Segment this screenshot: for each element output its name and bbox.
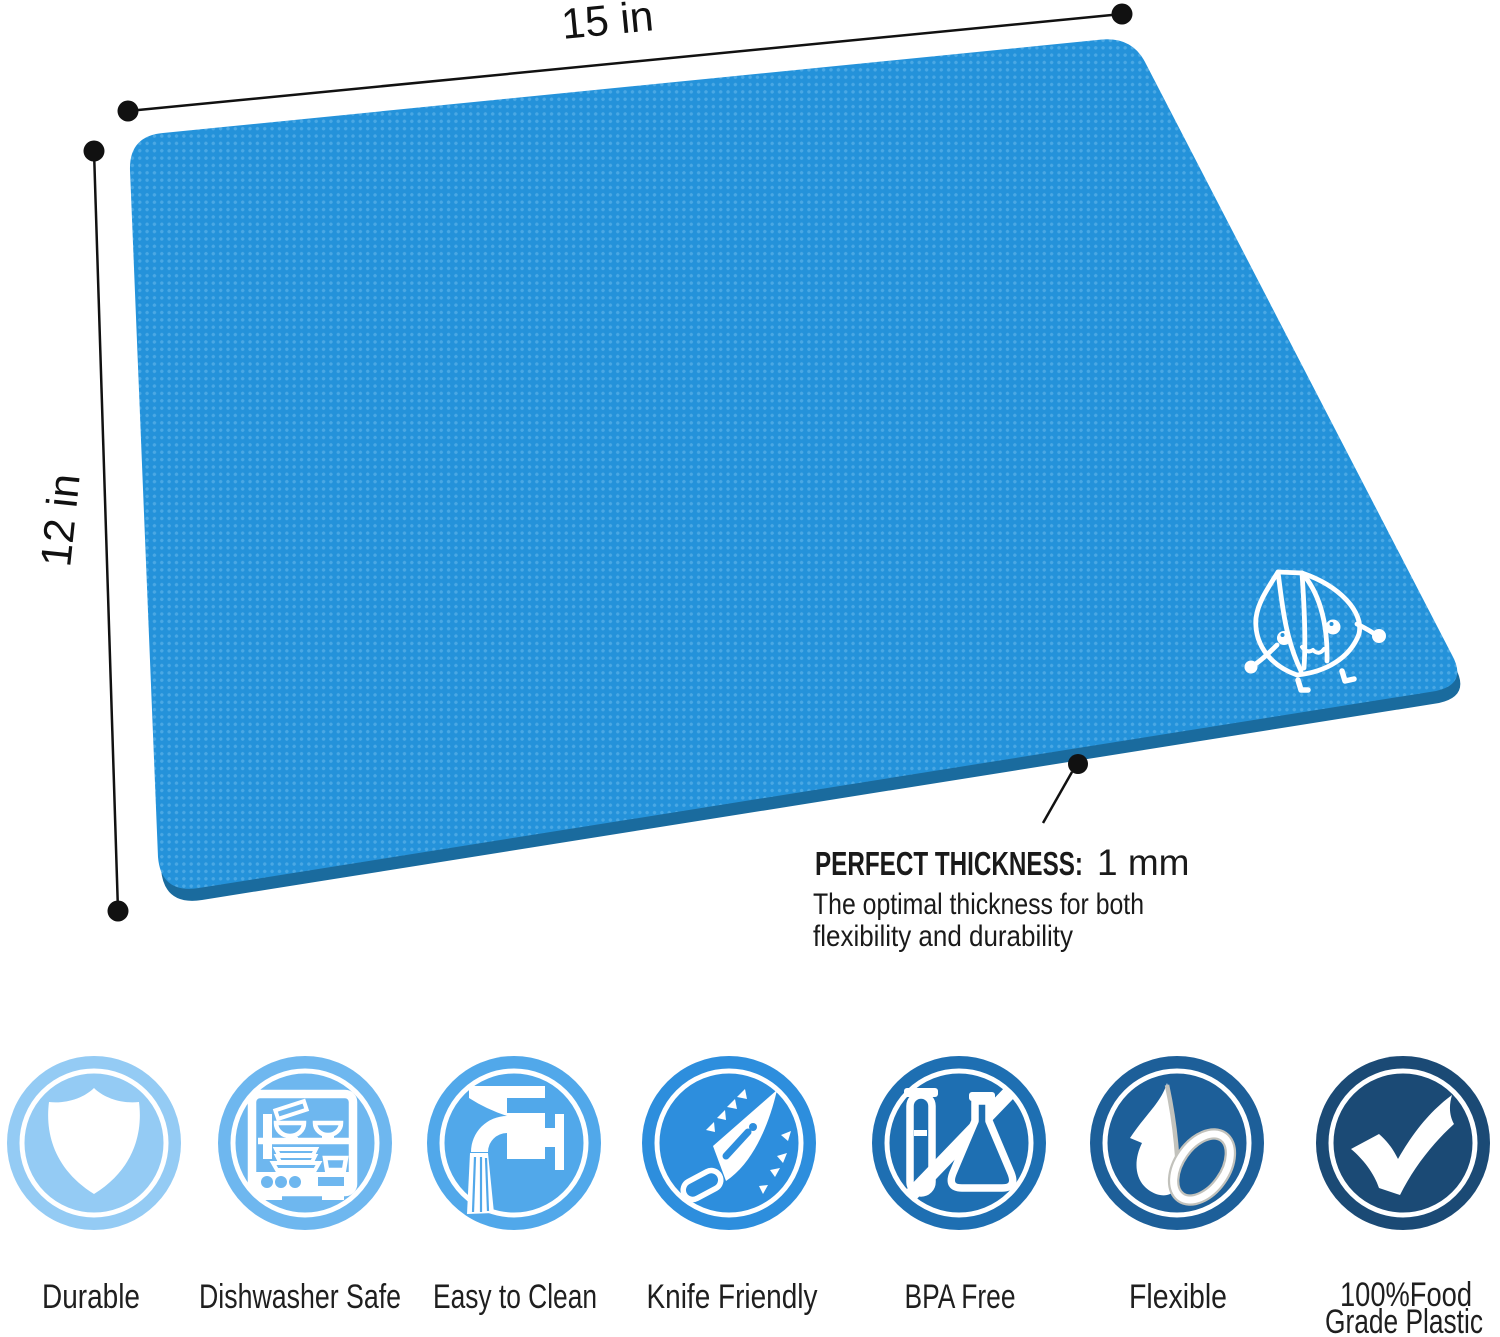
svg-text:PERFECT THICKNESS:: PERFECT THICKNESS:	[815, 845, 1083, 882]
svg-text:1 mm: 1 mm	[1097, 842, 1190, 883]
svg-text:12 in: 12 in	[32, 472, 89, 570]
svg-text:Dishwasher Safe: Dishwasher Safe	[199, 1278, 401, 1316]
svg-text:Flexible: Flexible	[1129, 1278, 1227, 1316]
svg-text:flexibility and durability: flexibility and durability	[813, 920, 1073, 953]
svg-text:Durable: Durable	[42, 1278, 140, 1316]
svg-text:15 in: 15 in	[559, 0, 655, 49]
svg-text:Knife Friendly: Knife Friendly	[647, 1278, 818, 1316]
svg-text:The optimal thickness for both: The optimal thickness for both	[813, 888, 1144, 921]
svg-text:BPA Free: BPA Free	[905, 1278, 1016, 1316]
svg-text:Grade Plastic: Grade Plastic	[1325, 1303, 1483, 1337]
svg-text:Easy to Clean: Easy to Clean	[433, 1278, 597, 1316]
